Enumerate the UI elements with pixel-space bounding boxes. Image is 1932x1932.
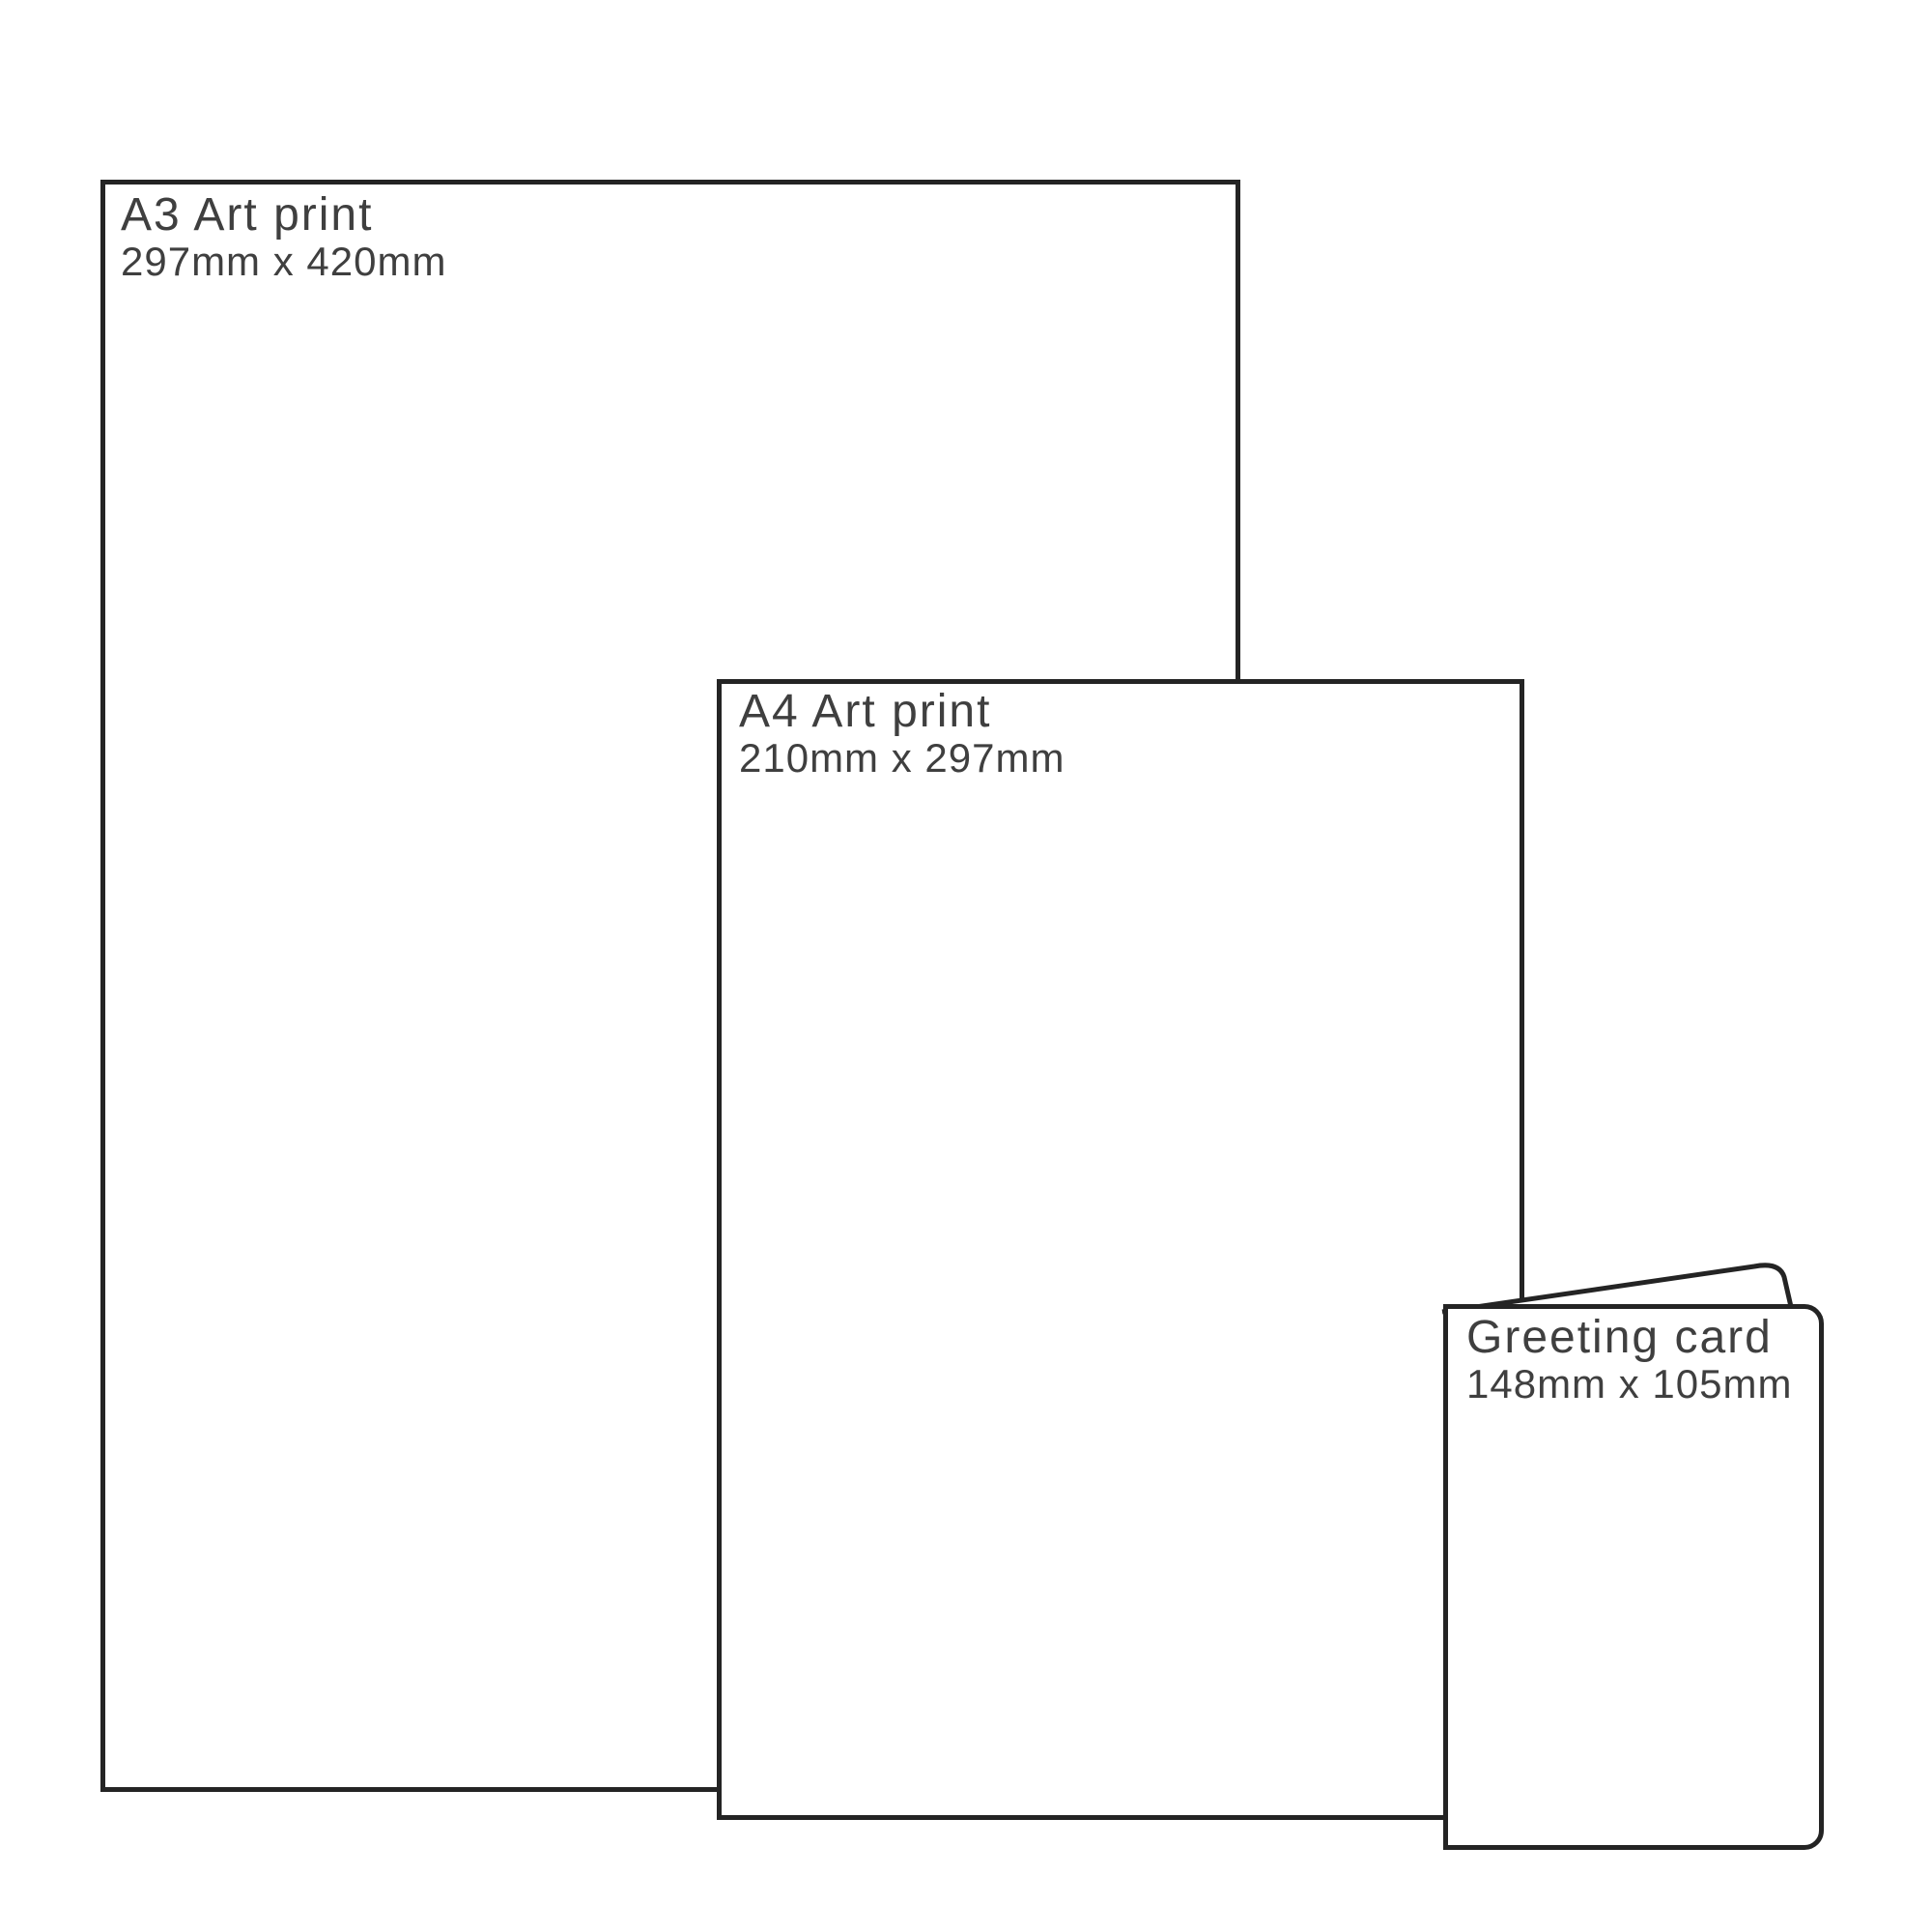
greeting-card-dimensions: 148mm x 105mm: [1466, 1364, 1792, 1405]
size-comparison-canvas: A3 Art print 297mm x 420mm A4 Art print …: [0, 0, 1932, 1932]
greeting-card-label: Greeting card 148mm x 105mm: [1466, 1315, 1792, 1405]
a4-print-title: A4 Art print: [739, 689, 1065, 735]
a4-print-label: A4 Art print 210mm x 297mm: [739, 689, 1065, 779]
a3-print-dimensions: 297mm x 420mm: [121, 241, 446, 282]
a3-print-title: A3 Art print: [121, 192, 446, 239]
a3-print-label: A3 Art print 297mm x 420mm: [121, 192, 446, 282]
greeting-card-title: Greeting card: [1466, 1315, 1792, 1361]
a4-print-outline: [717, 679, 1524, 1820]
a4-print-dimensions: 210mm x 297mm: [739, 738, 1065, 779]
